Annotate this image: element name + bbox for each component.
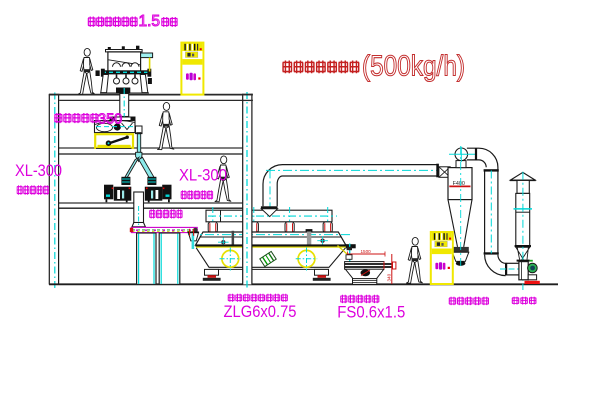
svg-text:FS0.6x1.5: FS0.6x1.5 — [337, 304, 405, 322]
svg-text:350: 350 — [98, 112, 122, 128]
svg-text:1.5: 1.5 — [139, 13, 161, 30]
svg-text:XL-300: XL-300 — [15, 162, 62, 180]
svg-text:340: 340 — [387, 273, 392, 281]
svg-text:F400: F400 — [453, 181, 465, 187]
svg-text:ZLG6x0.75: ZLG6x0.75 — [224, 303, 297, 321]
svg-text:XL-300: XL-300 — [179, 167, 227, 185]
svg-text:(500kg/h): (500kg/h) — [362, 51, 465, 83]
svg-text:1500: 1500 — [361, 249, 372, 254]
